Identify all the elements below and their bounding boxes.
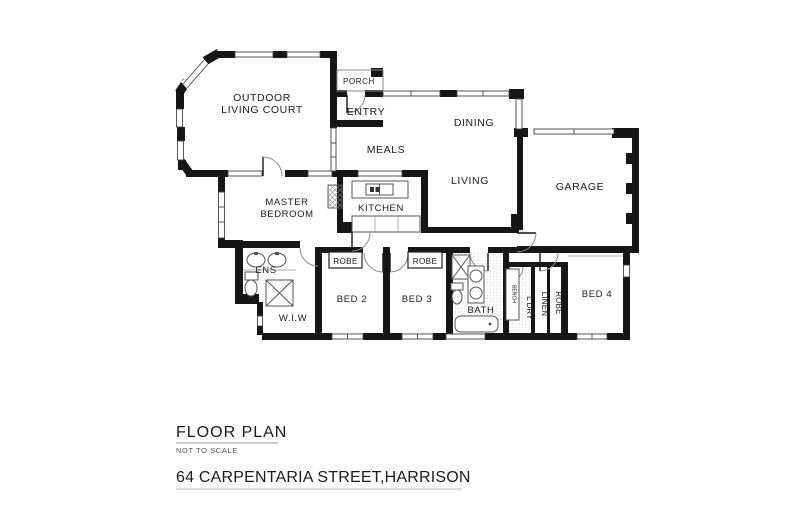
- address: 64 CARPENTARIA STREET,HARRISON: [176, 469, 471, 486]
- label-linen: LINEN: [540, 292, 549, 317]
- shower: [266, 280, 293, 306]
- label-garage: GARAGE: [556, 181, 605, 193]
- label-outdoor-living-court-2: LIVING COURT: [221, 104, 303, 116]
- bed3-door: [390, 253, 408, 272]
- floor-plan-page: OUTDOOR LIVING COURT PORCH ENTRY MEALS D…: [0, 0, 790, 527]
- label-wiw: W.I.W: [279, 313, 307, 324]
- scale-note: NOT TO SCALE: [176, 446, 238, 455]
- toilet: [451, 283, 463, 304]
- label-master-bedroom-2: BEDROOM: [260, 209, 313, 220]
- label-living: LIVING: [451, 175, 489, 187]
- label-bench: BENCH: [511, 285, 517, 303]
- court-diagonal-walls: [179, 53, 219, 175]
- label-master-bedroom: MASTER: [265, 197, 308, 208]
- label-robe-bed3: ROBE: [413, 257, 438, 266]
- label-robe-bed4: ROBE: [554, 291, 563, 314]
- label-bed3: BED 3: [402, 294, 432, 305]
- label-robe-bed2: ROBE: [333, 257, 358, 266]
- pantry: [328, 185, 342, 208]
- label-ldry: L'DRY: [525, 296, 534, 320]
- label-kitchen: KITCHEN: [358, 203, 404, 214]
- kitchen-island: [352, 181, 408, 198]
- bathtub: [455, 316, 498, 332]
- kitchen-bench: [352, 216, 420, 232]
- plan-title: FLOOR PLAN: [176, 424, 287, 441]
- label-dining: DINING: [454, 117, 494, 129]
- label-entry: ENTRY: [347, 106, 385, 118]
- title-block: FLOOR PLAN NOT TO SCALE 64 CARPENTARIA S…: [176, 424, 471, 489]
- label-bed2: BED 2: [337, 294, 367, 305]
- bed2-door: [364, 253, 383, 272]
- label-ens: ENS: [255, 265, 276, 276]
- vanity: [468, 266, 484, 303]
- label-bed4: BED 4: [582, 289, 612, 300]
- label-porch: PORCH: [343, 77, 375, 86]
- floor-plan-drawing: OUTDOOR LIVING COURT PORCH ENTRY MEALS D…: [0, 0, 790, 527]
- court-door: [263, 157, 282, 176]
- shower: [452, 255, 470, 279]
- label-bath: BATH: [467, 305, 494, 316]
- label-outdoor-living-court: OUTDOOR: [233, 92, 291, 104]
- label-meals: MEALS: [367, 144, 406, 156]
